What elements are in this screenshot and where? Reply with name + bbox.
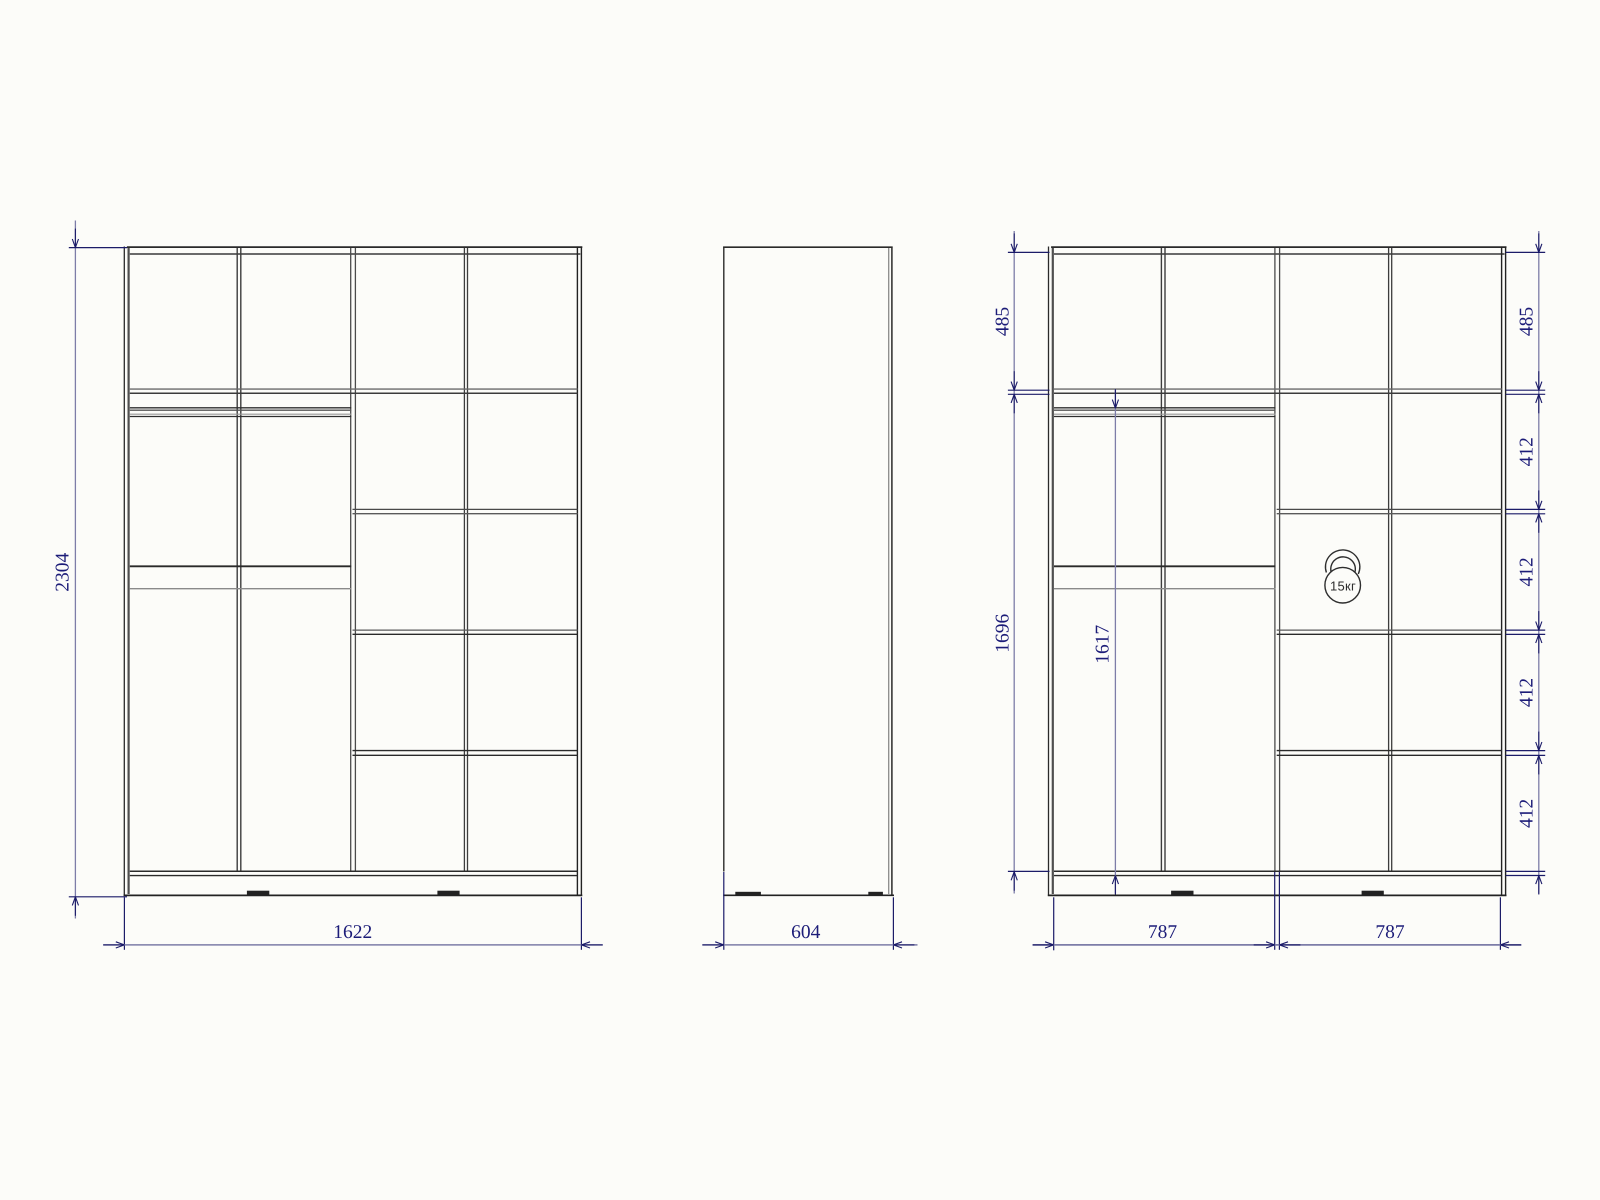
svg-text:2304: 2304 xyxy=(52,552,73,591)
svg-text:1622: 1622 xyxy=(333,922,372,943)
svg-text:787: 787 xyxy=(1375,922,1405,943)
svg-text:787: 787 xyxy=(1148,922,1178,943)
svg-text:412: 412 xyxy=(1517,799,1538,828)
svg-text:1617: 1617 xyxy=(1092,624,1113,663)
svg-text:485: 485 xyxy=(1517,307,1538,336)
svg-text:1696: 1696 xyxy=(992,613,1013,652)
svg-text:412: 412 xyxy=(1517,437,1538,466)
svg-text:412: 412 xyxy=(1517,678,1538,707)
svg-text:15кг: 15кг xyxy=(1330,579,1356,594)
svg-text:604: 604 xyxy=(791,922,821,943)
svg-text:485: 485 xyxy=(992,307,1013,336)
svg-text:412: 412 xyxy=(1517,557,1538,586)
